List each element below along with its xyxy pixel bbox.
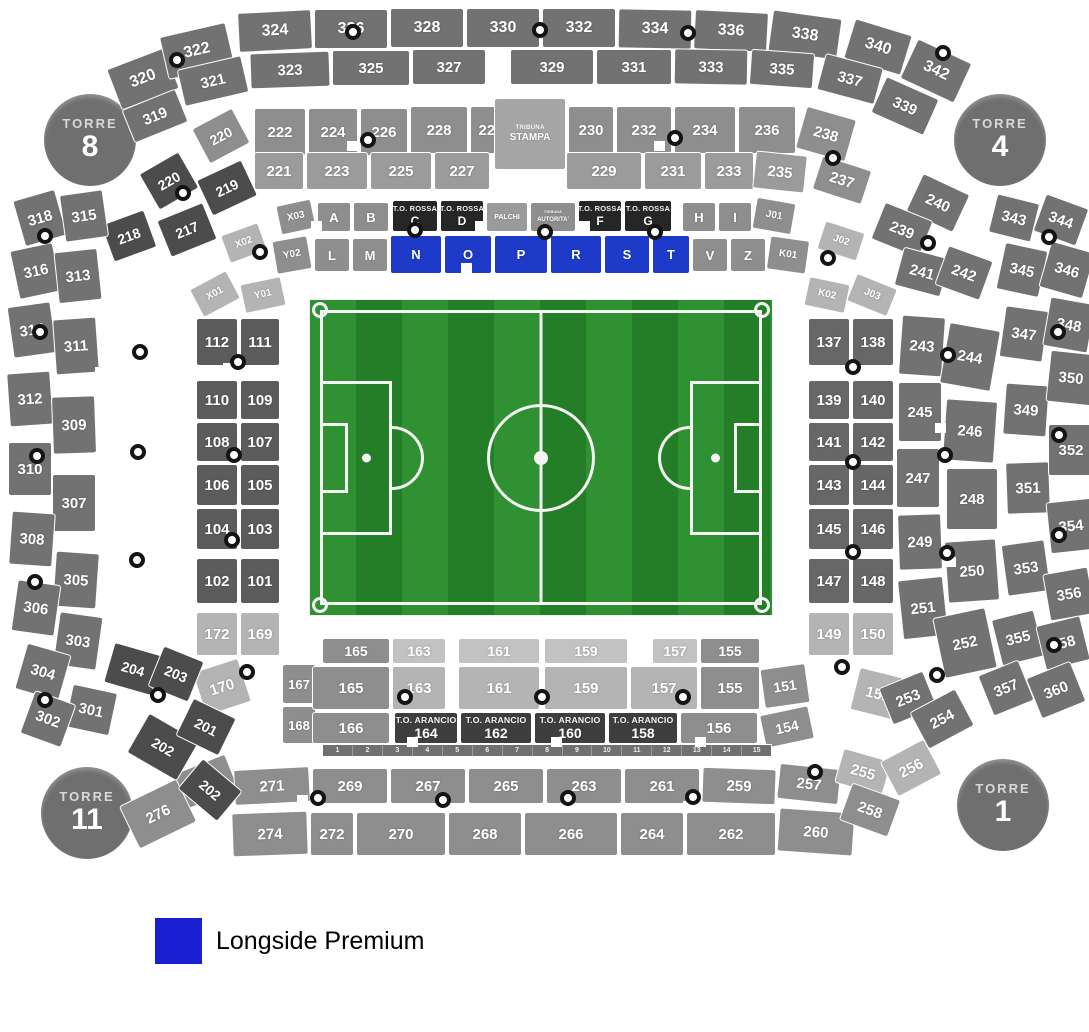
section-150[interactable]: 150: [852, 612, 894, 656]
section-n[interactable]: N: [390, 235, 442, 274]
section-sub-label: T.O. ROSSA: [393, 205, 437, 212]
seat-view-marker[interactable]: [360, 132, 376, 148]
seat-view-marker[interactable]: [1050, 324, 1066, 340]
section-r[interactable]: R: [550, 235, 602, 274]
seat-view-marker[interactable]: [37, 692, 53, 708]
section-sub-label: TRIBUNA: [515, 125, 544, 131]
gate-square: [347, 141, 358, 151]
section-155[interactable]: 155: [700, 638, 760, 664]
section-351[interactable]: 351: [1005, 461, 1051, 515]
section-148[interactable]: 148: [852, 558, 894, 604]
section-j01[interactable]: J01: [752, 197, 797, 235]
seat-view-marker[interactable]: [834, 659, 850, 675]
seat-view-marker[interactable]: [32, 324, 48, 340]
football-pitch: [310, 300, 772, 615]
section-249[interactable]: 249: [897, 513, 943, 571]
section-336[interactable]: 336: [693, 9, 769, 53]
section-165[interactable]: 165: [322, 638, 390, 664]
section-220[interactable]: 220: [139, 151, 200, 210]
pitch-center-spot: [534, 451, 548, 465]
section-149[interactable]: 149: [808, 612, 850, 656]
section-label: 162: [484, 726, 507, 740]
section-245[interactable]: 245: [898, 382, 942, 442]
section-234[interactable]: 234: [674, 106, 736, 154]
seat-view-marker[interactable]: [345, 24, 361, 40]
section-167[interactable]: 167: [282, 664, 316, 704]
section-220[interactable]: 220: [191, 108, 250, 165]
seat-view-marker[interactable]: [667, 130, 683, 146]
strip-cell-14[interactable]: 14: [712, 745, 742, 756]
seat-view-marker[interactable]: [825, 150, 841, 166]
section-v[interactable]: V: [692, 238, 728, 272]
section-313[interactable]: 313: [53, 248, 102, 304]
section-143[interactable]: 143: [808, 464, 850, 506]
seat-view-marker[interactable]: [1041, 229, 1057, 245]
section-327[interactable]: 327: [412, 49, 486, 85]
section-140[interactable]: 140: [852, 380, 894, 420]
gate-square: [95, 367, 106, 377]
section-sub-label: T.O. ROSSA: [626, 205, 670, 212]
strip-cell-2[interactable]: 2: [353, 745, 383, 756]
gate-square: [551, 737, 562, 747]
section-217[interactable]: 217: [156, 202, 217, 258]
section-label: D: [458, 215, 467, 227]
section-355[interactable]: 355: [991, 609, 1045, 666]
section-138[interactable]: 138: [852, 318, 894, 366]
seat-view-marker[interactable]: [230, 354, 246, 370]
seat-view-marker[interactable]: [239, 664, 255, 680]
section-i[interactable]: I: [718, 202, 752, 232]
seat-view-marker[interactable]: [845, 359, 861, 375]
section-110[interactable]: 110: [196, 380, 238, 420]
section-159[interactable]: 159: [544, 666, 628, 710]
section-243[interactable]: 243: [898, 315, 946, 378]
section-360[interactable]: 360: [1026, 661, 1087, 720]
section-259[interactable]: 259: [701, 767, 776, 806]
section-312[interactable]: 312: [6, 371, 54, 428]
section-j03[interactable]: J03: [846, 273, 898, 317]
section-sub-label: T.O. ARANCIO: [540, 716, 601, 725]
section-sub-label: T.O. ARANCIO: [466, 716, 527, 725]
section-328[interactable]: 328: [390, 8, 464, 48]
section-348[interactable]: 348: [1042, 296, 1089, 353]
section-272[interactable]: 272: [310, 812, 354, 856]
section-309[interactable]: 309: [51, 395, 97, 455]
seat-view-marker[interactable]: [937, 447, 953, 463]
section-a[interactable]: A: [317, 202, 351, 232]
section-346[interactable]: 346: [1038, 241, 1089, 300]
section-242[interactable]: 242: [934, 245, 993, 301]
section-137[interactable]: 137: [808, 318, 850, 366]
section-y02[interactable]: Y02: [271, 235, 312, 275]
section-162[interactable]: T.O. ARANCIO162: [460, 712, 532, 744]
tower-label: TORRE: [972, 116, 1027, 131]
section-223[interactable]: 223: [306, 152, 368, 190]
section-265[interactable]: 265: [468, 768, 544, 804]
tower-number: 1: [995, 795, 1012, 829]
section-sub-label: TRIBUNA: [544, 211, 562, 215]
seat-view-marker[interactable]: [150, 687, 166, 703]
seat-view-marker[interactable]: [224, 532, 240, 548]
section-106[interactable]: 106: [196, 464, 238, 506]
section-101[interactable]: 101: [240, 558, 280, 604]
seat-view-marker[interactable]: [939, 545, 955, 561]
seat-view-marker[interactable]: [680, 25, 696, 41]
section-247[interactable]: 247: [896, 448, 940, 508]
section-166[interactable]: 166: [312, 712, 390, 744]
section-stampa[interactable]: TRIBUNASTAMPA: [494, 98, 566, 170]
tower-1: TORRE1: [957, 759, 1049, 851]
tower-11: TORRE11: [41, 767, 133, 859]
seat-view-marker[interactable]: [132, 344, 148, 360]
section-343[interactable]: 343: [988, 193, 1040, 242]
section-y01[interactable]: Y01: [239, 276, 286, 314]
seat-view-marker[interactable]: [534, 689, 550, 705]
seat-view-marker[interactable]: [532, 22, 548, 38]
gate-square: [579, 221, 590, 231]
seat-view-marker[interactable]: [560, 790, 576, 806]
gate-square: [461, 263, 472, 273]
section-sub-label: T.O. ARANCIO: [396, 716, 457, 725]
strip-cell-7[interactable]: 7: [503, 745, 533, 756]
gate-square: [654, 141, 665, 151]
seat-view-marker[interactable]: [37, 228, 53, 244]
section-168[interactable]: 168: [282, 706, 316, 744]
section-169[interactable]: 169: [240, 612, 280, 656]
section-156[interactable]: 156: [680, 712, 758, 744]
section-107[interactable]: 107: [240, 422, 280, 462]
section-233[interactable]: 233: [704, 152, 754, 190]
section-307[interactable]: 307: [52, 474, 96, 532]
seat-view-marker[interactable]: [537, 224, 553, 240]
section-label: 158: [631, 726, 654, 740]
strip-cell-1[interactable]: 1: [323, 745, 353, 756]
tower-number: 11: [71, 803, 103, 837]
section-label: STAMPA: [510, 133, 551, 143]
seat-view-marker[interactable]: [435, 792, 451, 808]
pitch-corner-arc: [312, 597, 328, 613]
section-329[interactable]: 329: [510, 49, 594, 85]
section-p[interactable]: P: [494, 235, 548, 274]
section-356[interactable]: 356: [1042, 566, 1089, 621]
strip-cell-11[interactable]: 11: [622, 745, 652, 756]
section-308[interactable]: 308: [8, 511, 56, 568]
legend: Longside Premium: [155, 918, 424, 964]
section-sub-label: T.O. ROSSA: [578, 205, 622, 212]
pitch-corner-arc: [754, 302, 770, 318]
tower-label: TORRE: [975, 781, 1030, 796]
section-324[interactable]: 324: [237, 9, 313, 53]
section-102[interactable]: 102: [196, 558, 238, 604]
section-237[interactable]: 237: [812, 155, 873, 205]
pitch-penalty-spot-left: [362, 453, 371, 462]
seat-view-marker[interactable]: [130, 444, 146, 460]
section-229[interactable]: 229: [566, 152, 642, 190]
legend-label: Longside Premium: [216, 927, 424, 956]
seat-view-marker[interactable]: [129, 552, 145, 568]
section-k01[interactable]: K01: [766, 235, 810, 274]
section-b[interactable]: B: [353, 202, 389, 232]
section-155[interactable]: 155: [700, 666, 760, 710]
pitch-corner-arc: [754, 597, 770, 613]
seat-view-marker[interactable]: [1051, 427, 1067, 443]
section-l[interactable]: L: [314, 238, 350, 272]
section-139[interactable]: 139: [808, 380, 850, 420]
section-109[interactable]: 109: [240, 380, 280, 420]
section-221[interactable]: 221: [254, 152, 304, 190]
section-145[interactable]: 145: [808, 508, 850, 550]
section-sub-label: T.O. ARANCIO: [613, 716, 674, 725]
strip-cell-9[interactable]: 9: [563, 745, 593, 756]
section-z[interactable]: Z: [730, 238, 766, 272]
section-157[interactable]: 157: [652, 638, 698, 664]
section-230[interactable]: 230: [568, 106, 614, 154]
section-t[interactable]: T: [652, 235, 690, 274]
seat-view-marker[interactable]: [1046, 637, 1062, 653]
section-270[interactable]: 270: [356, 812, 446, 856]
section-227[interactable]: 227: [434, 152, 490, 190]
section-158[interactable]: T.O. ARANCIO158: [608, 712, 678, 744]
section-274[interactable]: 274: [231, 811, 308, 858]
section-label: AUTORITA': [537, 217, 569, 223]
section-m[interactable]: M: [352, 238, 388, 272]
seat-view-marker[interactable]: [929, 667, 945, 683]
seat-view-marker[interactable]: [845, 544, 861, 560]
pitch-corner-arc: [312, 302, 328, 318]
seat-view-marker[interactable]: [647, 224, 663, 240]
gate-square: [695, 737, 706, 747]
strip-cell-6[interactable]: 6: [473, 745, 503, 756]
strip-cell-12[interactable]: 12: [652, 745, 682, 756]
section-264[interactable]: 264: [620, 812, 684, 856]
gate-square: [145, 525, 156, 535]
section-141[interactable]: 141: [808, 422, 850, 462]
section-331[interactable]: 331: [596, 49, 672, 85]
section-label: F: [596, 215, 603, 227]
gate-square: [475, 221, 486, 231]
section-x01[interactable]: X01: [189, 270, 241, 318]
section-323[interactable]: 323: [249, 51, 330, 90]
stadium-seating-map: Longside Premium 32032232432632833033233…: [0, 0, 1089, 1032]
section-163[interactable]: 163: [392, 638, 446, 664]
seat-view-marker[interactable]: [310, 790, 326, 806]
tower-4: TORRE4: [954, 94, 1046, 186]
section-268[interactable]: 268: [448, 812, 522, 856]
tower-number: 8: [82, 130, 99, 164]
seat-view-marker[interactable]: [252, 244, 268, 260]
section-218[interactable]: 218: [101, 209, 158, 262]
section-161[interactable]: 161: [458, 666, 540, 710]
section-144[interactable]: 144: [852, 464, 894, 506]
seat-view-marker[interactable]: [807, 764, 823, 780]
section-147[interactable]: 147: [808, 558, 850, 604]
section-154[interactable]: 154: [759, 705, 815, 749]
strip-cell-15[interactable]: 15: [742, 745, 771, 756]
section-225[interactable]: 225: [370, 152, 432, 190]
section-325[interactable]: 325: [332, 50, 410, 86]
section-266[interactable]: 266: [524, 812, 618, 856]
section-sub-label: T.O. ROSSA: [440, 205, 484, 212]
pitch-penalty-spot-right: [711, 453, 720, 462]
tower-label: TORRE: [62, 116, 117, 131]
seat-view-marker[interactable]: [675, 689, 691, 705]
section-267[interactable]: 267: [390, 768, 466, 804]
section-222[interactable]: 222: [254, 108, 306, 156]
section-159[interactable]: 159: [544, 638, 628, 664]
section-315[interactable]: 315: [59, 189, 109, 243]
section-111[interactable]: 111: [240, 318, 280, 366]
section-347[interactable]: 347: [999, 305, 1050, 363]
section-231[interactable]: 231: [644, 152, 702, 190]
seat-view-marker[interactable]: [935, 45, 951, 61]
seat-view-marker[interactable]: [940, 347, 956, 363]
seat-view-marker[interactable]: [175, 185, 191, 201]
section-s[interactable]: S: [604, 235, 650, 274]
gate-square: [935, 423, 946, 433]
section-354[interactable]: 354: [1045, 498, 1089, 555]
section-h[interactable]: H: [682, 202, 716, 232]
section-305[interactable]: 305: [52, 551, 100, 610]
section-335[interactable]: 335: [749, 49, 815, 89]
section-350[interactable]: 350: [1045, 350, 1089, 407]
section-236[interactable]: 236: [738, 106, 796, 154]
legend-swatch-longside-premium: [155, 918, 202, 964]
section-151[interactable]: 151: [759, 663, 810, 709]
gate-square: [297, 795, 308, 805]
section-248[interactable]: 248: [946, 468, 998, 530]
seat-view-marker[interactable]: [397, 689, 413, 705]
seat-view-marker[interactable]: [226, 447, 242, 463]
section-263[interactable]: 263: [546, 768, 622, 804]
section-262[interactable]: 262: [686, 812, 776, 856]
section-235[interactable]: 235: [752, 150, 808, 193]
section-165[interactable]: 165: [312, 666, 390, 710]
section-146[interactable]: 146: [852, 508, 894, 550]
pitch-goal-area-left: [320, 423, 348, 493]
seat-view-marker[interactable]: [845, 454, 861, 470]
section-349[interactable]: 349: [1002, 383, 1050, 438]
tower-label: TORRE: [59, 789, 114, 804]
section-103[interactable]: 103: [240, 508, 280, 550]
section-345[interactable]: 345: [995, 242, 1048, 298]
section-160[interactable]: T.O. ARANCIO160: [534, 712, 606, 744]
gate-square: [407, 737, 418, 747]
seat-view-marker[interactable]: [920, 235, 936, 251]
strip-cell-10[interactable]: 10: [592, 745, 622, 756]
seat-view-marker[interactable]: [820, 250, 836, 266]
seat-view-marker[interactable]: [169, 52, 185, 68]
seat-view-marker[interactable]: [27, 574, 43, 590]
section-105[interactable]: 105: [240, 464, 280, 506]
strip-cell-5[interactable]: 5: [443, 745, 473, 756]
seat-view-marker[interactable]: [1051, 527, 1067, 543]
section-330[interactable]: 330: [466, 8, 540, 48]
section-164[interactable]: T.O. ARANCIO164: [394, 712, 458, 744]
gate-square: [311, 221, 322, 231]
section-161[interactable]: 161: [458, 638, 540, 664]
section-333[interactable]: 333: [674, 48, 749, 85]
seat-view-marker[interactable]: [29, 448, 45, 464]
seat-view-marker[interactable]: [685, 789, 701, 805]
seat-view-marker[interactable]: [407, 222, 423, 238]
section-172[interactable]: 172: [196, 612, 238, 656]
section-311[interactable]: 311: [52, 317, 100, 376]
pitch-goal-area-right: [734, 423, 762, 493]
section-k02[interactable]: K02: [803, 276, 850, 314]
section-palchi[interactable]: PALCHI: [486, 202, 528, 232]
section-228[interactable]: 228: [410, 106, 468, 154]
tower-number: 4: [992, 130, 1009, 164]
section-332[interactable]: 332: [542, 8, 616, 48]
